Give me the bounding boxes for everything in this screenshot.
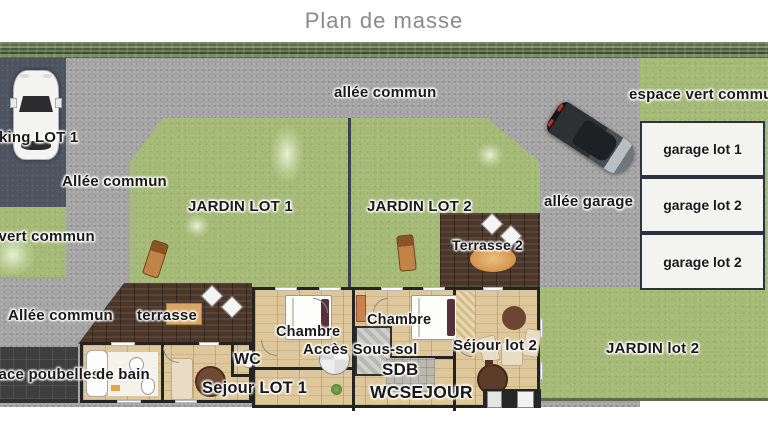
- label-chambre-right: Chambre: [367, 312, 431, 328]
- garage-label: garage lot 2: [663, 254, 742, 270]
- label-allee-commun-left-upper: Allée commun: [62, 173, 167, 190]
- label-terrasse2: Terrasse 2: [452, 237, 523, 253]
- garage-label: garage lot 1: [663, 141, 742, 157]
- label-sdb: SDB: [382, 360, 419, 380]
- towel-icon: [111, 385, 120, 391]
- label-sejour-lower: SEJOUR: [400, 382, 473, 402]
- page-title: Plan de masse: [0, 8, 768, 34]
- fridge-icon: [517, 391, 534, 408]
- label-allee-commun-top: allée commun: [334, 84, 436, 101]
- lot-boundary-line: [348, 118, 351, 287]
- label-sejour-lot1: Sejour LOT 1: [202, 379, 307, 398]
- car-dark-top-view: [542, 102, 642, 176]
- label-allee-commun-left-lower: Allée commun: [8, 307, 113, 324]
- garage-lot2b-box: garage lot 2: [640, 233, 765, 290]
- chair-icon: [481, 213, 504, 236]
- label-wc-sejour: WCSEJOUR: [370, 382, 473, 403]
- label-jardin-lot2-upper: JARDIN LOT 2: [367, 198, 472, 215]
- sun-lounger-icon: [142, 239, 169, 278]
- label-acces-sous-sol: Accès Sous-sol: [303, 341, 418, 358]
- label-terrasse1: terrasse: [137, 307, 197, 324]
- tree-icon: [184, 214, 210, 238]
- site-plan: Plan de masse garage lot 1 garage lot 2 …: [0, 0, 768, 432]
- label-salle-de-bain: de bain: [96, 366, 150, 383]
- garage-lot1-box: garage lot 1: [640, 121, 765, 177]
- car-white-top-view: [13, 70, 59, 160]
- rug-icon: [502, 306, 526, 330]
- chair-icon: [201, 285, 224, 308]
- sun-lounger-icon: [396, 234, 417, 272]
- sofa-icon: [171, 358, 193, 400]
- hedge-strip: [0, 42, 768, 59]
- label-jardin-lot1: JARDIN LOT 1: [188, 198, 293, 215]
- garage-lot2-box: garage lot 2: [640, 177, 765, 233]
- label-allee-garage: allée garage: [544, 193, 633, 210]
- label-jardin-lot2-lower: JARDIN lot 2: [606, 340, 699, 357]
- label-espace-poubelles: espace poubelles: [0, 366, 100, 383]
- label-wc-upper: WC: [234, 351, 261, 369]
- chair-icon: [221, 296, 244, 319]
- label-parking-lot1: parking LOT 1: [0, 129, 78, 146]
- label-sejour-lot2: Séjour lot 2: [453, 337, 537, 354]
- label-chambre-left: Chambre: [276, 324, 340, 340]
- garage-label: garage lot 2: [663, 197, 742, 213]
- stove-icon: [487, 391, 502, 408]
- label-wc-lower: WC: [370, 382, 400, 402]
- tree-icon: [270, 124, 304, 184]
- dresser-icon: [356, 295, 366, 322]
- label-espace-vert-commun-left: espace vert commun: [0, 228, 95, 245]
- tree-icon: [476, 142, 504, 168]
- plant-icon: [331, 384, 342, 395]
- label-espace-vert-commun-right: espace vert commun: [629, 86, 768, 103]
